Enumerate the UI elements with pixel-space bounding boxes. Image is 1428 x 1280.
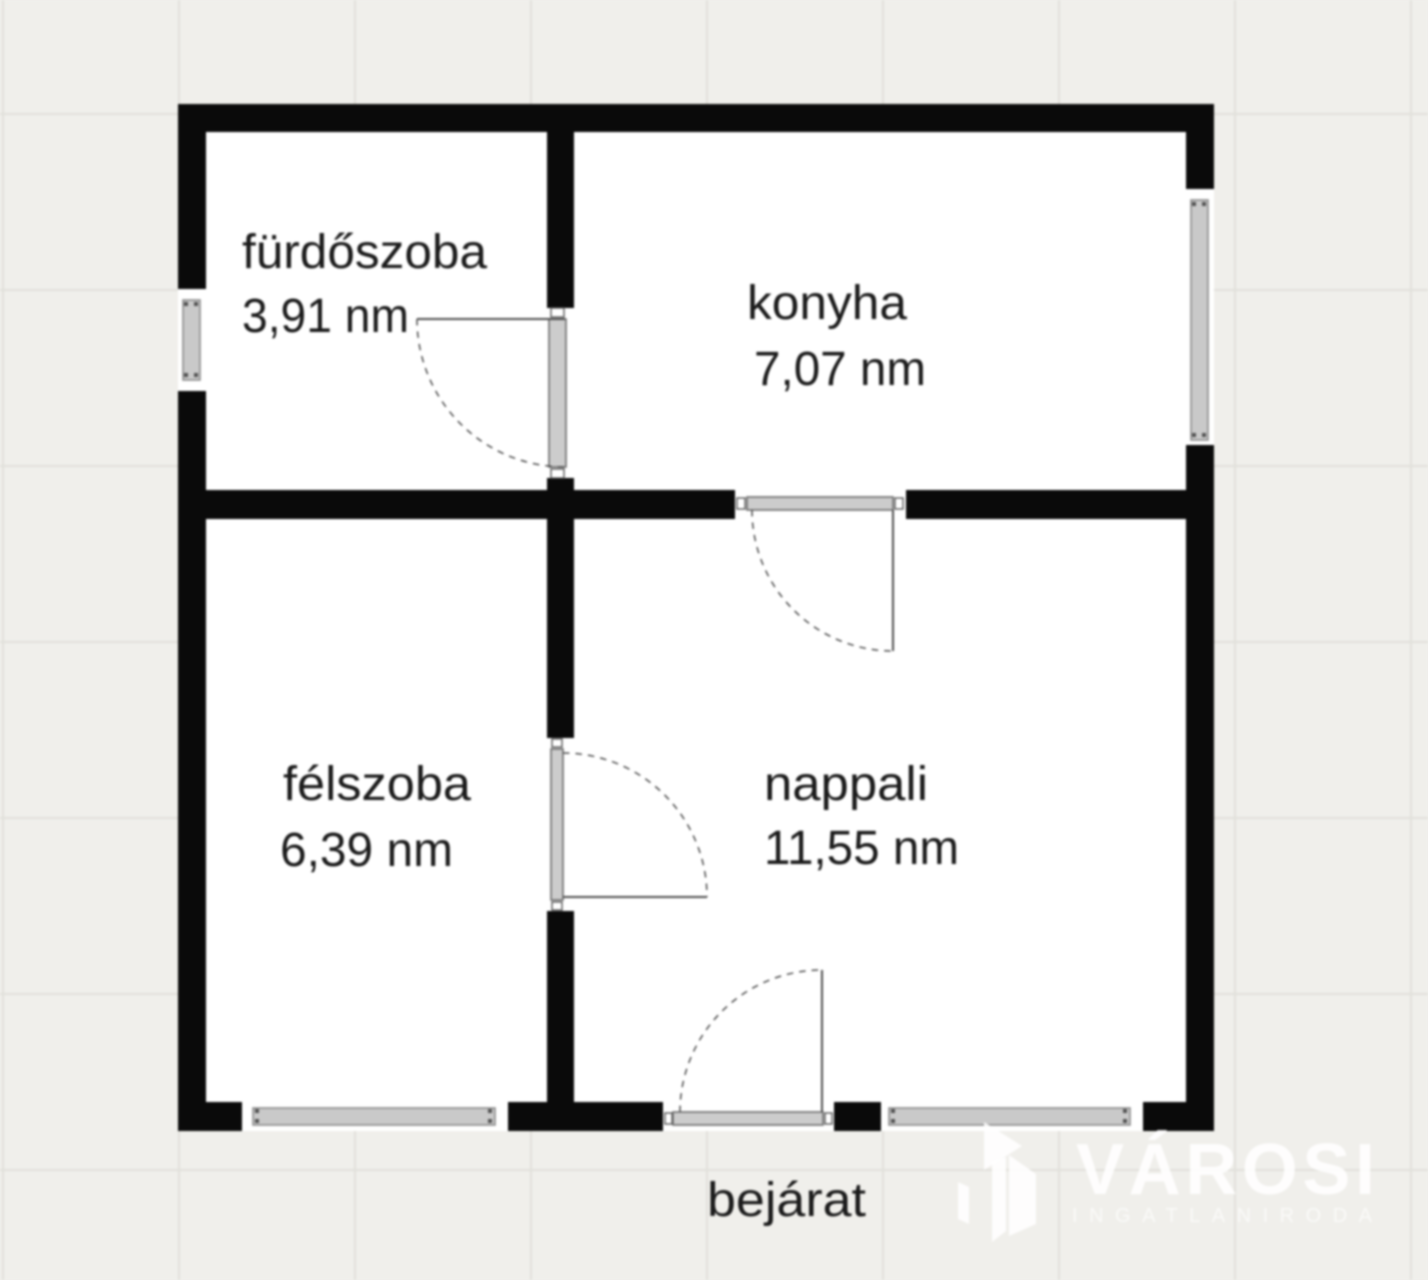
svg-text:félszoba: félszoba bbox=[283, 758, 471, 811]
svg-text:6,39 nm: 6,39 nm bbox=[280, 824, 453, 877]
svg-text:11,55 nm: 11,55 nm bbox=[764, 822, 959, 875]
svg-text:VÁROSI: VÁROSI bbox=[1076, 1130, 1375, 1210]
svg-text:konyha: konyha bbox=[747, 277, 907, 330]
svg-text:3,91 nm: 3,91 nm bbox=[242, 290, 409, 343]
svg-text:7,07 nm: 7,07 nm bbox=[754, 343, 926, 396]
svg-text:fürdőszoba: fürdőszoba bbox=[242, 226, 487, 279]
svg-text:bejárat: bejárat bbox=[707, 1174, 866, 1227]
svg-text:nappali: nappali bbox=[764, 758, 928, 811]
